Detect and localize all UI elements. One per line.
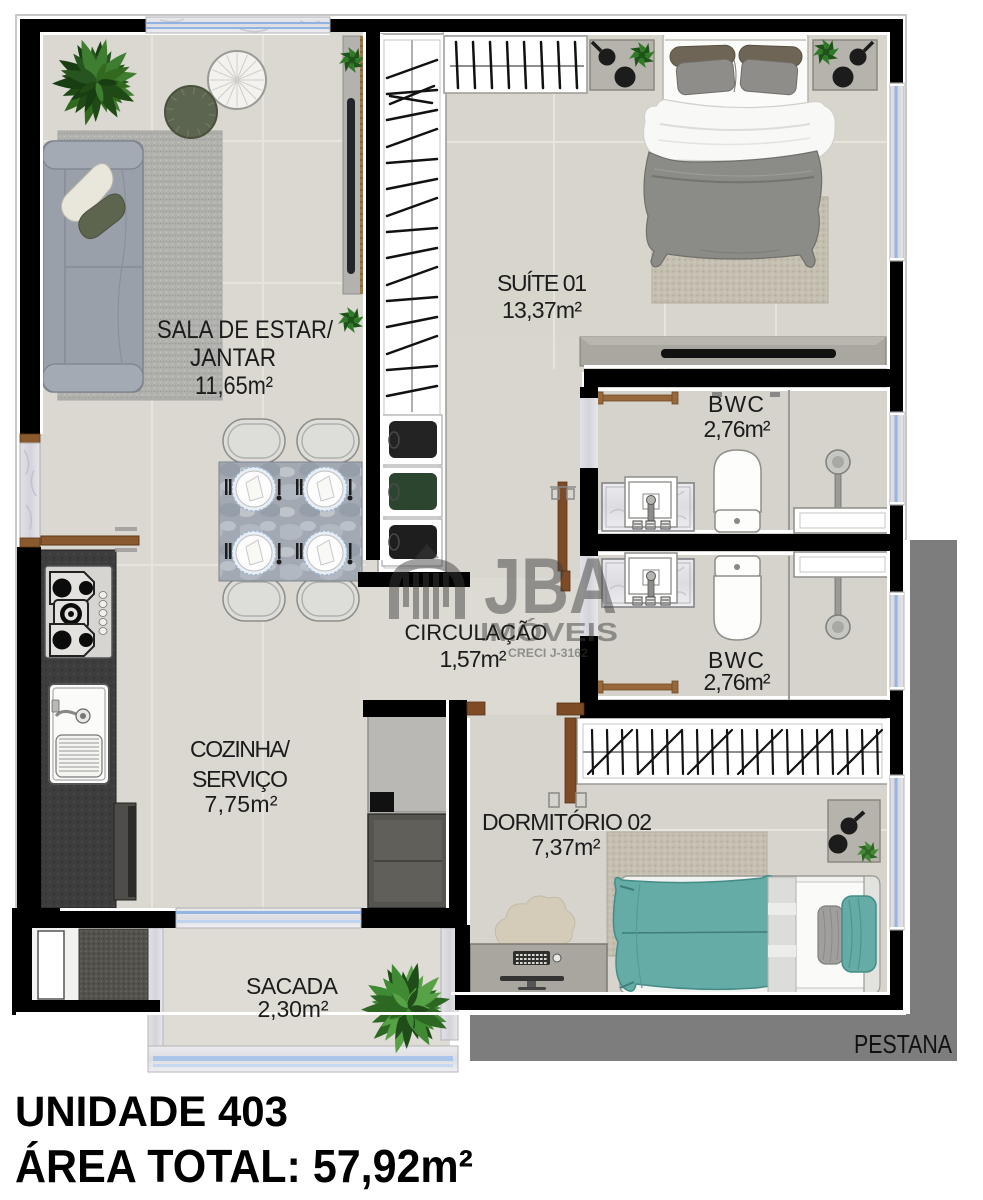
svg-text:7,75m²: 7,75m²: [205, 791, 278, 817]
svg-text:DORMITÓRIO 02: DORMITÓRIO 02: [482, 809, 652, 835]
svg-text:BWC: BWC: [708, 391, 764, 417]
svg-text:SERVIÇO: SERVIÇO: [192, 766, 288, 792]
svg-text:7,37m²: 7,37m²: [532, 834, 601, 860]
svg-text:SUÍTE 01: SUÍTE 01: [497, 270, 587, 296]
svg-text:2,30m²: 2,30m²: [258, 996, 329, 1022]
svg-text:ÁREA TOTAL: 57,92m²: ÁREA TOTAL: 57,92m²: [15, 1140, 473, 1192]
svg-text:2,76m²: 2,76m²: [704, 416, 771, 442]
svg-text:13,37m²: 13,37m²: [502, 297, 582, 323]
svg-text:CIRCULAÇÃO: CIRCULAÇÃO: [405, 620, 548, 645]
svg-text:COZINHA/: COZINHA/: [190, 736, 291, 762]
svg-text:1,57m²: 1,57m²: [440, 646, 507, 672]
svg-text:CRECI J-3162: CRECI J-3162: [508, 646, 588, 660]
svg-text:JANTAR: JANTAR: [190, 344, 276, 372]
svg-text:SALA DE ESTAR/: SALA DE ESTAR/: [157, 316, 333, 344]
svg-text:PESTANA: PESTANA: [854, 1029, 953, 1059]
svg-text:2,76m²: 2,76m²: [704, 669, 771, 695]
svg-text:UNIDADE 403: UNIDADE 403: [15, 1088, 288, 1136]
svg-text:11,65m²: 11,65m²: [195, 372, 273, 400]
